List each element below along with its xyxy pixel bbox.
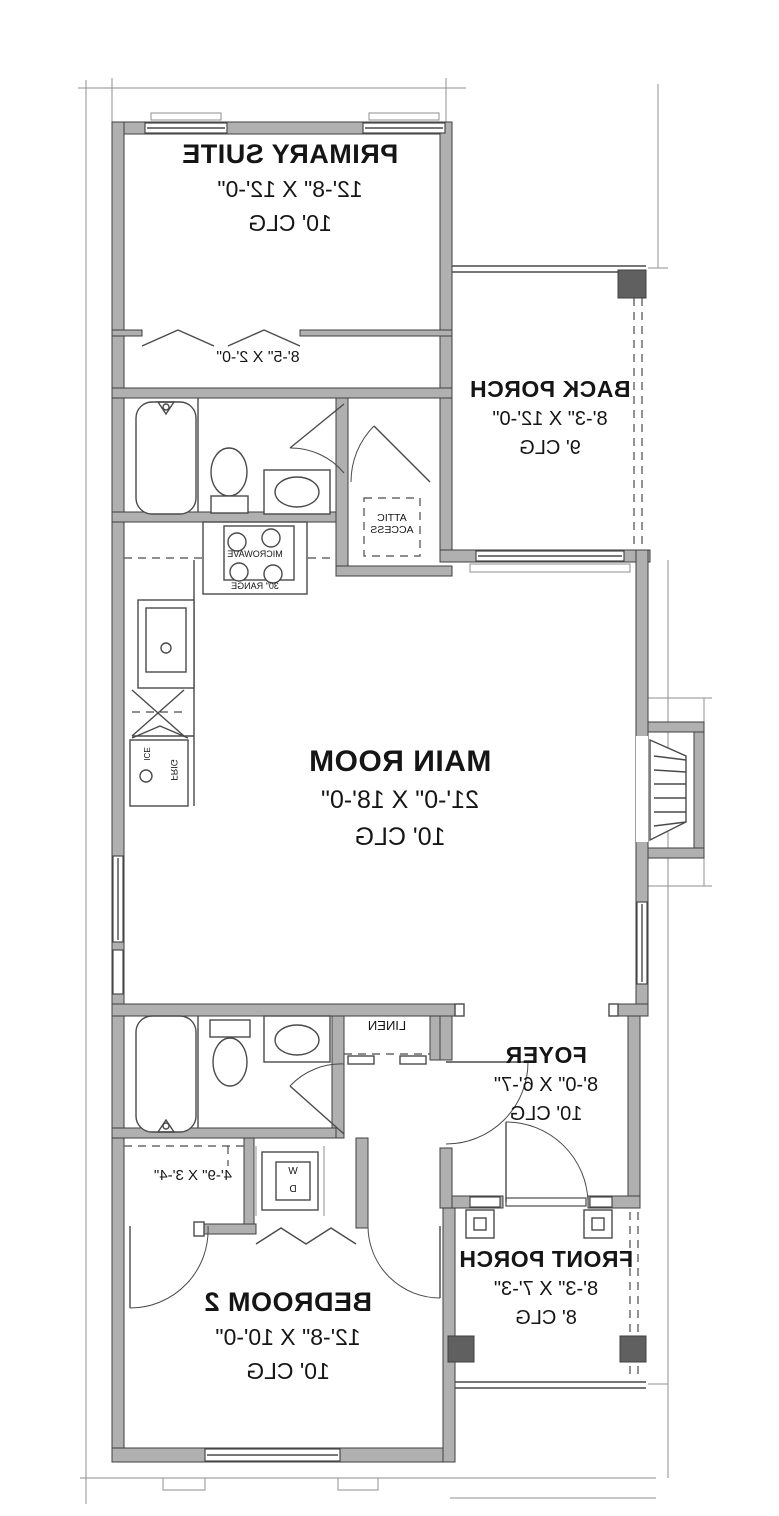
room-dims: 12'-8" X 10'-0" (138, 1320, 438, 1354)
room-dims: 21'-0" X 18'-0" (240, 782, 560, 819)
bathtub-2 (136, 1016, 196, 1132)
room-ceiling: 10' CLG (448, 1100, 644, 1129)
fireplace (636, 722, 704, 858)
room-ceiling: 9' CLG (452, 434, 648, 463)
kitchen-sink (138, 600, 194, 688)
room-dims: 8'-3" X 7'-3" (446, 1275, 646, 1304)
bifold-door (256, 1228, 356, 1244)
bathtub-primary (136, 402, 196, 514)
fridge-label: FRIG (168, 756, 180, 784)
room-label-main-room: MAIN ROOM 21'-0" X 18'-0" 10' CLG (240, 742, 560, 856)
room-ceiling: 8' CLG (446, 1304, 646, 1333)
room-label-bedroom-2: BEDROOM 2 12'-8" X 10'-0" 10' CLG (138, 1284, 438, 1388)
room-dims: 8'-3" X 12'-0" (452, 405, 648, 434)
room-dims: 12'-8" X 12'-0" (140, 172, 440, 206)
room-label-foyer: FOYER 8'-0" X 6'-7" 10' CLG (448, 1040, 644, 1129)
porch-post (620, 1336, 646, 1362)
room-label-back-porch: BACK PORCH 8'-3" X 12'-0" 9' CLG (452, 374, 648, 463)
porch-column (584, 1210, 612, 1238)
room-ceiling: 10' CLG (240, 819, 560, 856)
room-name: BEDROOM 2 (138, 1284, 438, 1320)
attic-access-line1: ATTIC (363, 512, 421, 524)
door-front-entry (506, 1122, 588, 1202)
ice-label: ICE (140, 742, 152, 766)
floor-plan-canvas: PRIMARY SUITE 12'-8" X 12'-0" 10' CLG BA… (0, 0, 779, 1516)
room-name: FOYER (448, 1040, 644, 1071)
porch-post (448, 1336, 474, 1362)
room-dims: 8'-0" X 6'-7" (448, 1071, 644, 1100)
corner-cabinet (132, 690, 194, 736)
toilet-2 (210, 1020, 250, 1086)
washer-dryer-unit (256, 1146, 324, 1216)
laundry-closet (124, 1146, 244, 1166)
microwave-label: MICROWAVE (205, 548, 305, 560)
door-hall (351, 426, 430, 482)
vanity-2 (264, 1016, 330, 1062)
porch-column (466, 1210, 494, 1238)
range-label: 30" RANGE (205, 580, 305, 592)
laundry-closet-dims-label: 4'-9" X 3'-4" (130, 1170, 256, 1182)
room-name: MAIN ROOM (240, 742, 560, 782)
linen-label: LINEN (348, 1020, 426, 1032)
bifold-door (142, 330, 214, 346)
room-label-primary-suite: PRIMARY SUITE 12'-8" X 12'-0" 10' CLG (140, 136, 440, 240)
vanity-primary (264, 470, 330, 514)
washer-label: W (276, 1166, 310, 1178)
room-ceiling: 10' CLG (138, 1354, 438, 1388)
attic-access-line2: ACCESS (363, 524, 421, 536)
bifold-door (228, 330, 300, 346)
room-name: PRIMARY SUITE (140, 136, 440, 172)
room-name: FRONT PORCH (446, 1244, 646, 1275)
attic-access-label: ATTIC ACCESS (363, 512, 421, 536)
dryer-label: D (276, 1184, 310, 1196)
room-ceiling: 10' CLG (140, 206, 440, 240)
linen-closet (344, 1054, 430, 1064)
porch-post (618, 270, 646, 298)
room-name: BACK PORCH (452, 374, 648, 405)
primary-closet-dims-label: 8'-5" X 2'-0" (168, 352, 348, 364)
toilet-primary (211, 448, 248, 513)
room-label-front-porch: FRONT PORCH 8'-3" X 7'-3" 8' CLG (446, 1244, 646, 1333)
